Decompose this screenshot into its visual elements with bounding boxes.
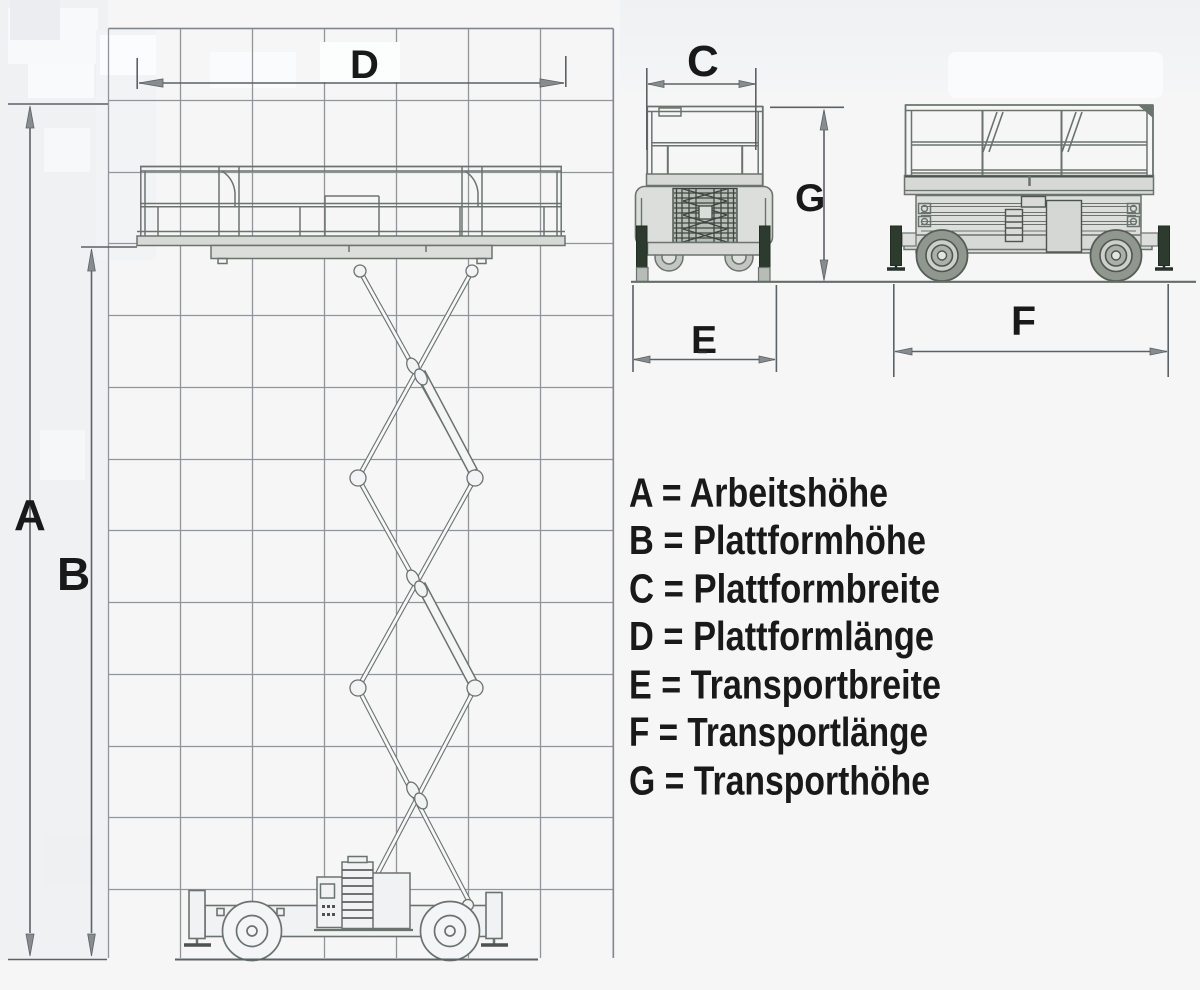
svg-text:A = Arbeitshöhe: A = Arbeitshöhe (629, 469, 888, 515)
svg-text:F: F (1011, 298, 1036, 344)
svg-text:B: B (57, 548, 90, 600)
svg-text:E = Transportbreite: E = Transportbreite (629, 661, 941, 707)
svg-text:G = Transporthöhe: G = Transporthöhe (629, 757, 930, 803)
svg-text:G: G (795, 177, 825, 220)
svg-text:D = Plattformlänge: D = Plattformlänge (629, 613, 934, 659)
svg-text:C = Plattformbreite: C = Plattformbreite (629, 565, 940, 611)
svg-text:C: C (687, 37, 719, 86)
svg-text:D: D (350, 43, 379, 87)
svg-text:A: A (14, 491, 46, 540)
svg-text:F = Transportlänge: F = Transportlänge (629, 709, 928, 755)
svg-text:B = Plattformhöhe: B = Plattformhöhe (629, 517, 926, 563)
svg-text:E: E (691, 319, 717, 362)
